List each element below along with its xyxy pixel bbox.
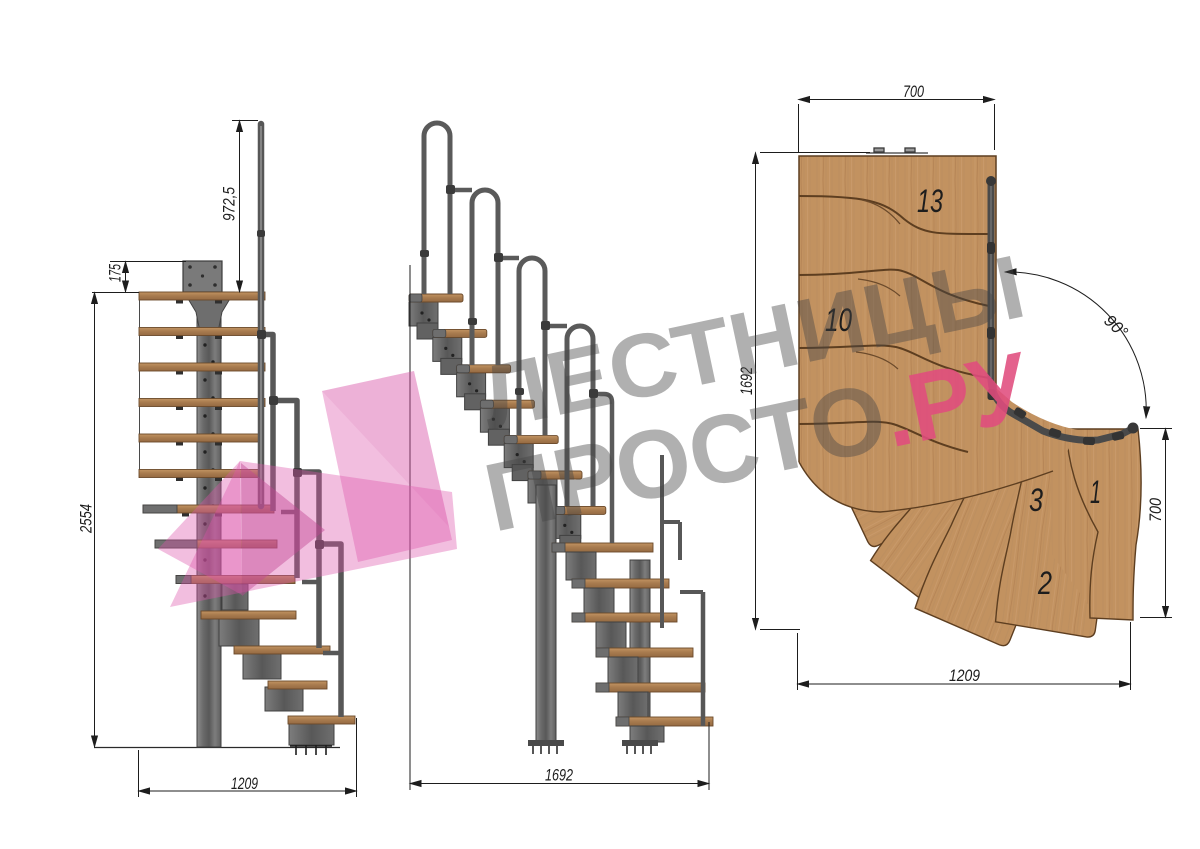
svg-text:13: 13 <box>917 183 943 219</box>
svg-text:1692: 1692 <box>545 766 573 785</box>
svg-text:2: 2 <box>1037 565 1052 601</box>
svg-text:972,5: 972,5 <box>220 187 239 221</box>
svg-text:3: 3 <box>1029 482 1043 518</box>
svg-text:1209: 1209 <box>949 666 980 685</box>
svg-text:700: 700 <box>1146 498 1165 522</box>
svg-text:1: 1 <box>1090 474 1101 510</box>
svg-text:175: 175 <box>106 264 125 282</box>
svg-text:2554: 2554 <box>77 504 96 534</box>
svg-text:700: 700 <box>903 82 924 101</box>
svg-text:1209: 1209 <box>231 774 258 793</box>
